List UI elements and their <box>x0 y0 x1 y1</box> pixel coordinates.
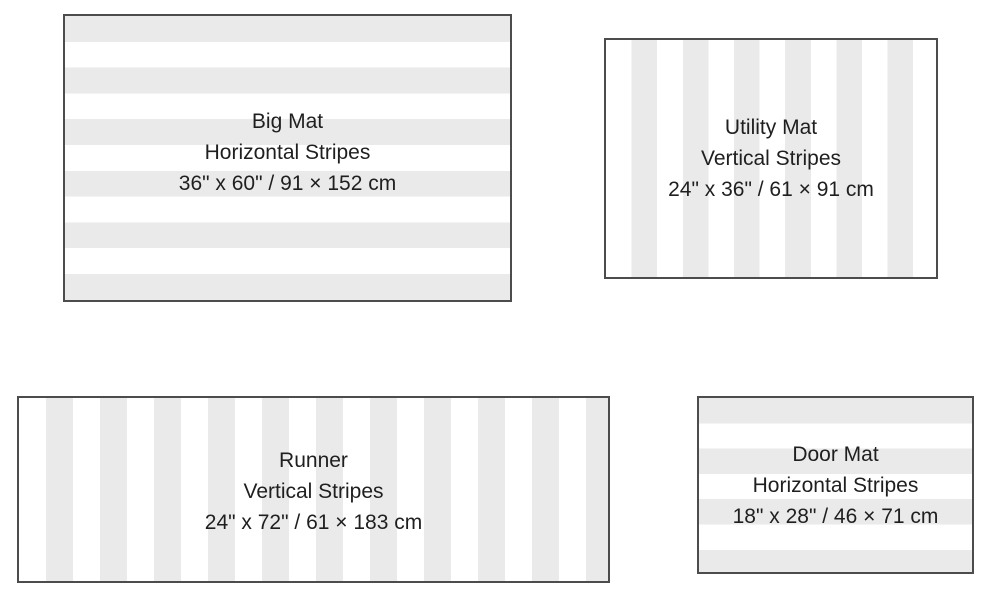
mat-name: Big Mat <box>179 106 396 137</box>
mat-runner: Runner Vertical Stripes 24" x 72" / 61 ×… <box>17 396 610 583</box>
mat-name: Runner <box>205 445 422 476</box>
mat-name: Utility Mat <box>668 112 874 143</box>
mat-size: 24" x 72" / 61 × 183 cm <box>205 507 422 538</box>
mat-size: 36" x 60" / 91 × 152 cm <box>179 168 396 199</box>
mat-size: 18" x 28" / 46 × 71 cm <box>733 501 939 532</box>
mat-big-mat: Big Mat Horizontal Stripes 36" x 60" / 9… <box>63 14 512 302</box>
mat-pattern: Vertical Stripes <box>668 143 874 174</box>
mat-pattern: Horizontal Stripes <box>733 470 939 501</box>
mat-door-mat-label: Door Mat Horizontal Stripes 18" x 28" / … <box>733 439 939 532</box>
mat-pattern: Horizontal Stripes <box>179 137 396 168</box>
mat-door-mat: Door Mat Horizontal Stripes 18" x 28" / … <box>697 396 974 574</box>
mat-size-guide-canvas: Big Mat Horizontal Stripes 36" x 60" / 9… <box>0 0 1000 598</box>
mat-name: Door Mat <box>733 439 939 470</box>
mat-runner-label: Runner Vertical Stripes 24" x 72" / 61 ×… <box>205 445 422 538</box>
mat-utility-mat: Utility Mat Vertical Stripes 24" x 36" /… <box>604 38 938 279</box>
mat-big-mat-label: Big Mat Horizontal Stripes 36" x 60" / 9… <box>179 106 396 199</box>
mat-utility-mat-label: Utility Mat Vertical Stripes 24" x 36" /… <box>668 112 874 205</box>
mat-size: 24" x 36" / 61 × 91 cm <box>668 174 874 205</box>
mat-pattern: Vertical Stripes <box>205 476 422 507</box>
